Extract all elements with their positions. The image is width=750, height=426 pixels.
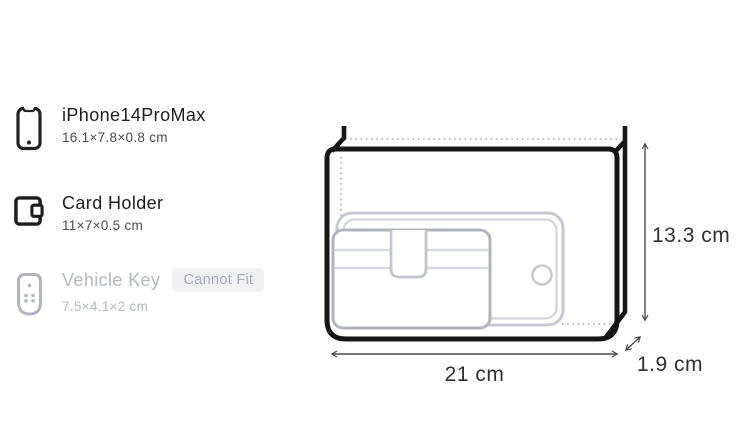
- depth-dimension-label: 1.9 cm: [637, 353, 703, 377]
- product-dimension-infographic: iPhone14ProMax 16.1×7.8×0.8 cm Card Hold…: [0, 0, 750, 426]
- list-item-card-holder: Card Holder 11×7×0.5 cm: [14, 192, 163, 233]
- width-dimension-label: 21 cm: [331, 363, 618, 387]
- item-dimensions: 16.1×7.8×0.8 cm: [62, 130, 206, 145]
- key-fob-icon: [14, 272, 44, 317]
- item-name: iPhone14ProMax: [62, 104, 206, 126]
- list-item-iphone: iPhone14ProMax 16.1×7.8×0.8 cm: [14, 104, 206, 151]
- item-name: Card Holder: [62, 192, 163, 214]
- item-name: Vehicle Key: [62, 269, 160, 291]
- bag-diagram: 13.3 cm 21 cm 1.9 cm: [300, 110, 750, 426]
- item-dimensions: 11×7×0.5 cm: [62, 218, 163, 233]
- list-item-vehicle-key: Vehicle Key Cannot Fit 7.5×4.1×2 cm: [14, 268, 264, 317]
- height-dimension-label: 13.3 cm: [652, 224, 730, 248]
- depth-arrow: [626, 337, 640, 350]
- card-holder-icon: [14, 194, 44, 228]
- item-dimensions: 7.5×4.1×2 cm: [62, 299, 264, 314]
- smartphone-icon: [14, 106, 44, 151]
- card-holder-ghost-outline: [333, 230, 490, 328]
- cannot-fit-badge: Cannot Fit: [172, 268, 264, 292]
